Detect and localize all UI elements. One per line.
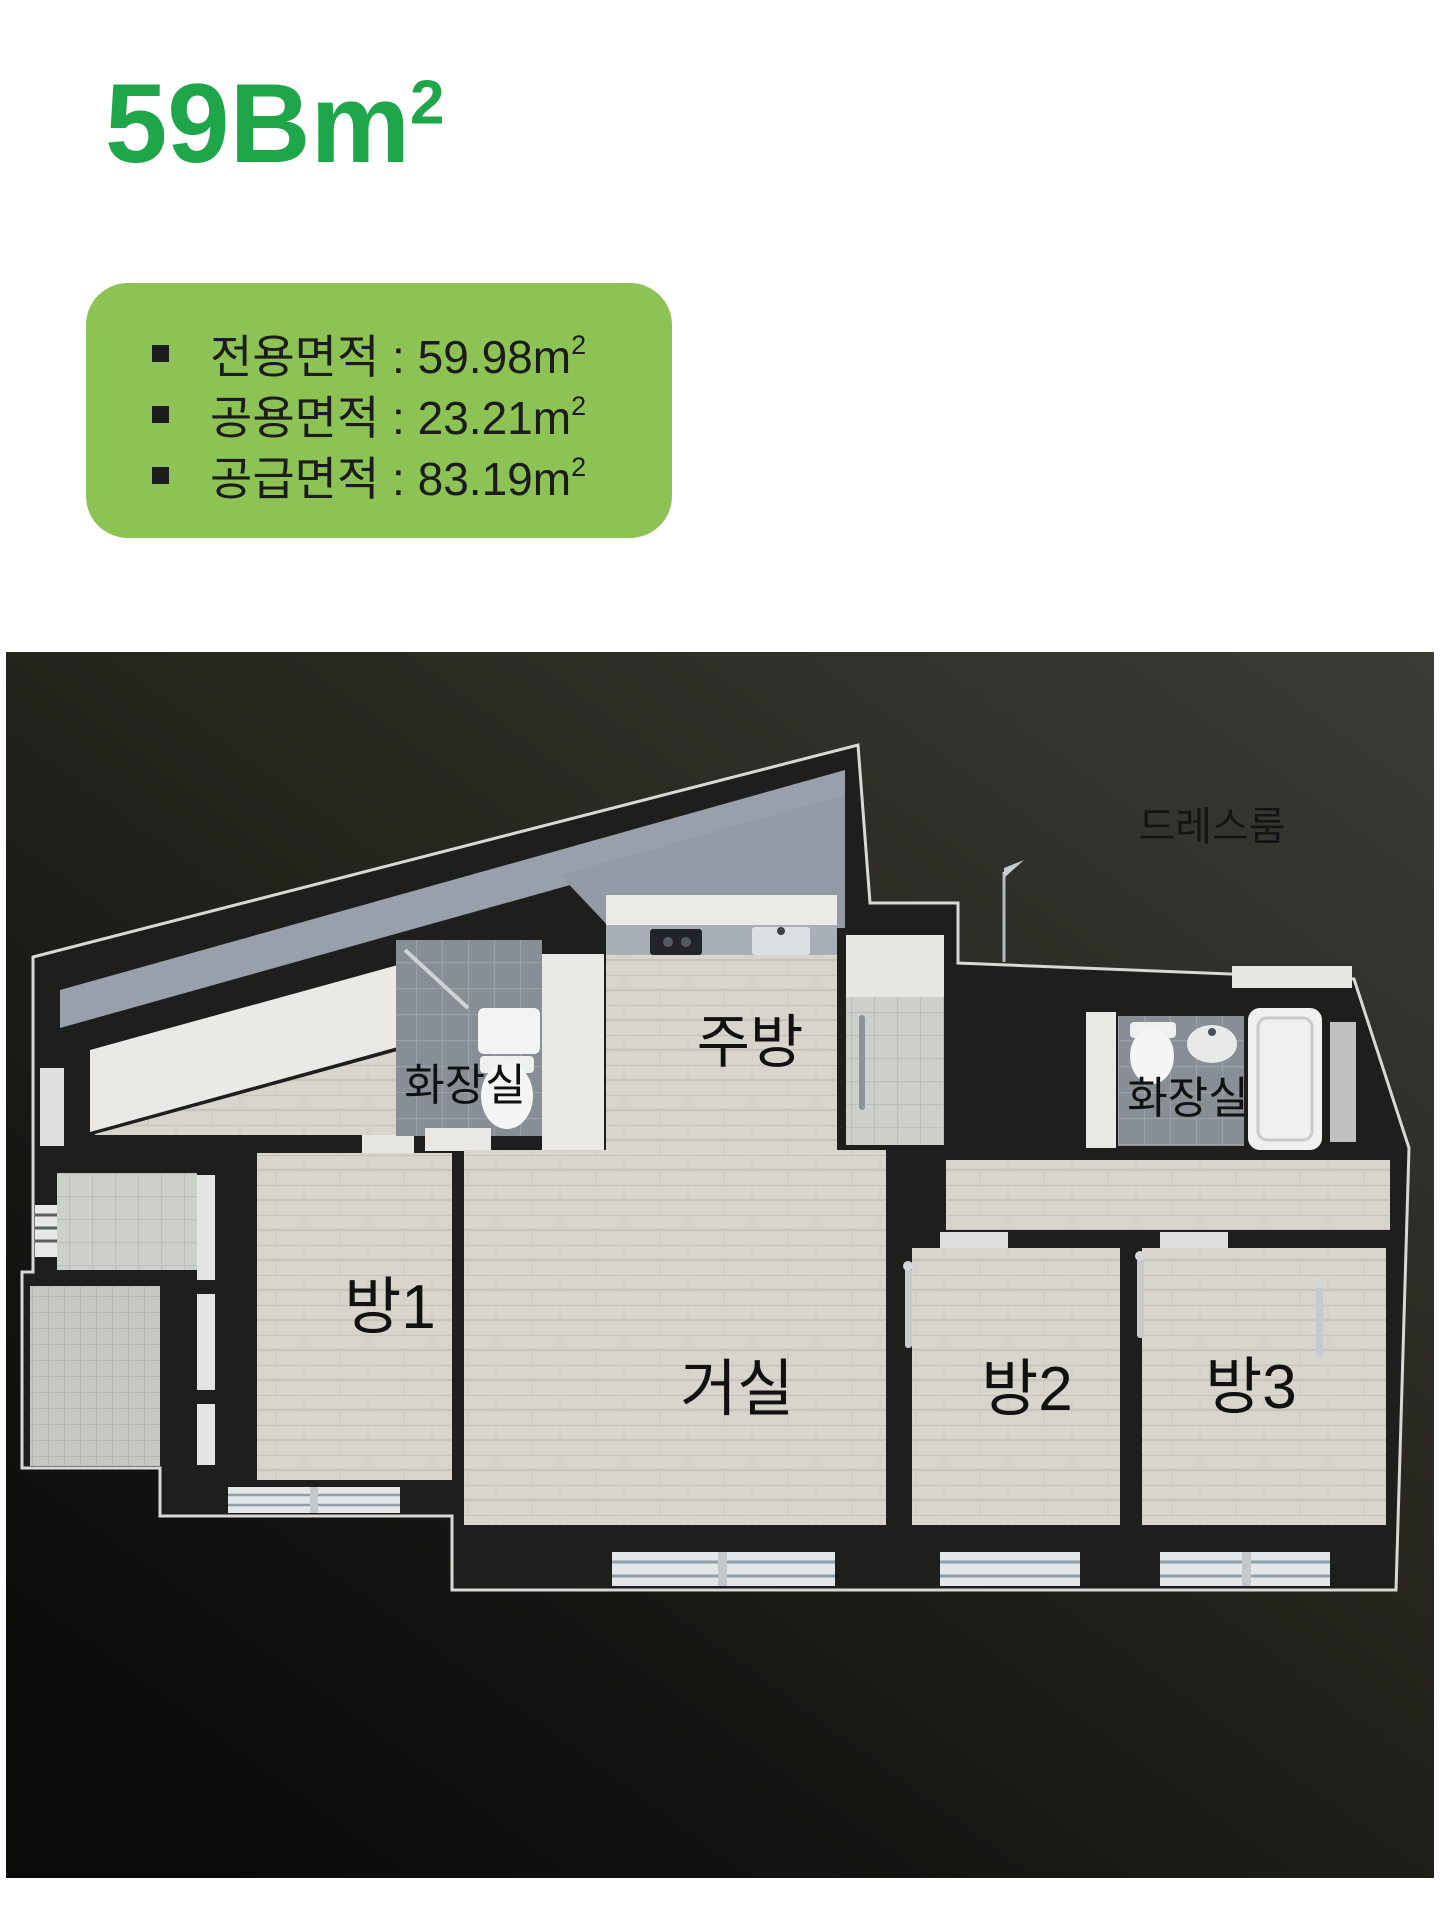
label-living: 거실 xyxy=(680,1355,794,1424)
bathroom-left xyxy=(396,940,542,1151)
room1-side-window xyxy=(197,1175,215,1465)
label-bath-left: 화장실 xyxy=(404,1061,525,1110)
room3-door-gap xyxy=(1160,1232,1228,1248)
label-room3: 방3 xyxy=(1205,1353,1297,1422)
ladder-icon xyxy=(35,1205,57,1257)
dressroom-closet xyxy=(1232,966,1352,988)
label-kitchen: 주방 xyxy=(697,1010,804,1075)
info-row-exclusive-area: 전용면적 : 59.98m2 xyxy=(86,323,672,384)
room2-window xyxy=(940,1552,1080,1586)
area-info-box: 전용면적 : 59.98m2 공용면적 : 23.21m2 공급면적 : 83.… xyxy=(86,283,672,538)
entry-door xyxy=(40,1068,64,1146)
living-floor xyxy=(464,1150,886,1525)
room1-door-gap xyxy=(362,1135,414,1153)
balcony-bottom xyxy=(30,1286,160,1466)
info-row-common-area: 공용면적 : 23.21m2 xyxy=(86,384,672,445)
page-title-sup: 2 xyxy=(410,69,444,138)
bullet-icon xyxy=(152,345,169,362)
pantry-column xyxy=(846,935,944,1145)
balcony-top xyxy=(57,1173,197,1270)
label-room2: 방2 xyxy=(981,1355,1073,1424)
label-room1: 방1 xyxy=(344,1273,436,1342)
info-row-supply-area: 공급면적 : 83.19m2 xyxy=(86,445,672,506)
wall-divider xyxy=(542,954,604,1153)
room1-window xyxy=(228,1487,400,1513)
floor-plan-svg: 드레스룸 주방 화장실 화장실 방1 거실 방2 방3 xyxy=(6,652,1434,1878)
page-title-text: 59Bm xyxy=(105,61,410,186)
window-mullion xyxy=(197,1280,215,1294)
corridor-floor xyxy=(946,1160,1390,1230)
room2-door-gap xyxy=(940,1232,1008,1248)
room3-window xyxy=(1160,1552,1330,1586)
label-bath-right: 화장실 xyxy=(1127,1074,1248,1123)
info-row-text: 공용면적 : 23.21m xyxy=(210,382,571,448)
page-title: 59Bm2 xyxy=(105,62,445,185)
bullet-icon xyxy=(152,467,169,484)
info-row-text: 전용면적 : 59.98m xyxy=(210,321,571,387)
living-window xyxy=(612,1552,835,1586)
info-row-text: 공급면적 : 83.19m xyxy=(210,443,571,509)
label-dressroom: 드레스룸 xyxy=(1138,805,1285,849)
window-mullion xyxy=(197,1390,215,1404)
floor-plan-image: 드레스룸 주방 화장실 화장실 방1 거실 방2 방3 xyxy=(6,652,1434,1878)
bullet-icon xyxy=(152,406,169,423)
